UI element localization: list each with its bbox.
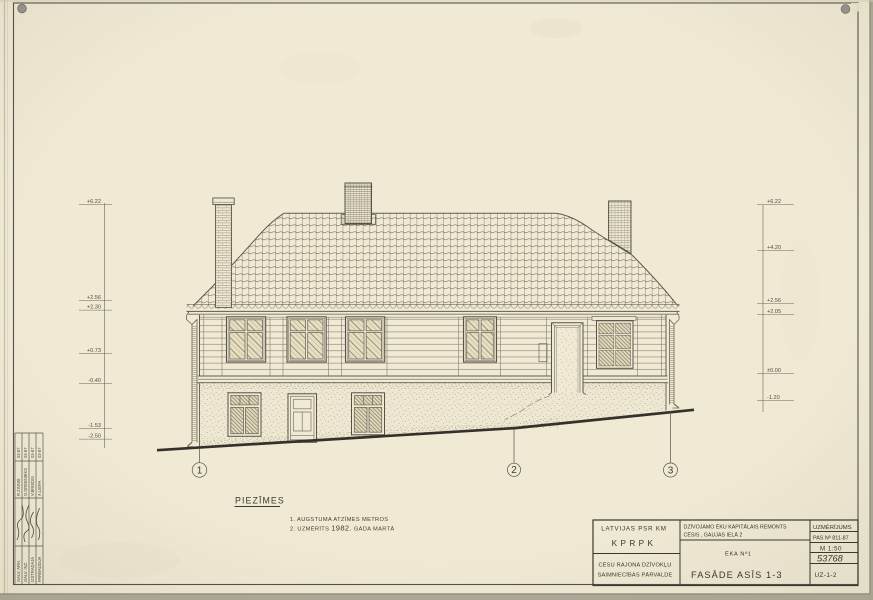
- svg-text:03-87: 03-87: [23, 447, 28, 458]
- svg-text:LATVIJAS PSR KM: LATVIJAS PSR KM: [601, 526, 667, 533]
- svg-text:-0.40: -0.40: [88, 378, 101, 384]
- svg-text:PIEZĪMES: PIEZĪMES: [235, 496, 285, 506]
- svg-text:1: 1: [197, 466, 203, 477]
- svg-text:CĒSU RAJONA DZĪVOKĻU: CĒSU RAJONA DZĪVOKĻU: [598, 562, 671, 569]
- svg-text:2: 2: [511, 465, 517, 476]
- svg-text:3: 3: [668, 466, 674, 477]
- svg-text:+2.30: +2.30: [87, 305, 101, 311]
- svg-text:±0.00: ±0.00: [767, 368, 781, 374]
- svg-text:KPRPK: KPRPK: [612, 539, 657, 548]
- svg-text:ĒKA Nº1: ĒKA Nº1: [725, 551, 752, 558]
- svg-text:+6.22: +6.22: [87, 199, 101, 205]
- svg-text:+4.20: +4.20: [767, 245, 781, 251]
- svg-text:O.DREBNIEKS: O.DREBNIEKS: [23, 468, 28, 496]
- svg-text:03-87: 03-87: [16, 447, 21, 458]
- svg-text:+6.22: +6.22: [767, 199, 781, 205]
- svg-text:PAS Nº 811-87: PAS Nº 811-87: [813, 536, 849, 542]
- svg-text:DZĪVOJAMO ĒKU KAPITĀLAIS REMON: DZĪVOJAMO ĒKU KAPITĀLAIS REMONTS: [684, 524, 787, 531]
- svg-text:-1.20: -1.20: [767, 395, 780, 401]
- svg-text:A.LIEPA: A.LIEPA: [37, 481, 42, 496]
- svg-text:UZ-1-2: UZ-1-2: [815, 572, 837, 579]
- svg-text:GALV. INZ.: GALV. INZ.: [23, 562, 28, 582]
- svg-text:R.ZINNIS: R.ZINNIS: [16, 478, 21, 496]
- svg-text:IZSTRADAJA: IZSTRADAJA: [30, 557, 35, 582]
- svg-text:+2.56: +2.56: [87, 295, 101, 301]
- svg-text:SAIMNIECĪBAS PĀRVALDE: SAIMNIECĪBAS PĀRVALDE: [598, 572, 673, 579]
- svg-text:GALV. ARH.: GALV. ARH.: [16, 560, 21, 582]
- svg-text:V.BRIEDIS: V.BRIEDIS: [30, 476, 35, 496]
- svg-text:53768: 53768: [817, 554, 844, 564]
- svg-text:+2.56: +2.56: [767, 298, 781, 304]
- svg-text:-1.53: -1.53: [88, 423, 101, 429]
- svg-text:M 1:50: M 1:50: [820, 546, 842, 553]
- svg-text:+2.05: +2.05: [767, 309, 781, 315]
- svg-text:CĒSIS , GAUJAS IELĀ 2: CĒSIS , GAUJAS IELĀ 2: [684, 532, 743, 539]
- svg-text:FASĀDE ASĪS 1-3: FASĀDE ASĪS 1-3: [691, 570, 783, 580]
- svg-text:1. AUGSTUMA ATZĪMES METROS: 1. AUGSTUMA ATZĪMES METROS: [290, 516, 388, 523]
- svg-text:+0.73: +0.73: [87, 348, 101, 354]
- svg-text:03-87: 03-87: [37, 447, 42, 458]
- svg-text:-2.50: -2.50: [88, 434, 101, 440]
- svg-text:UZMĒRĪJUMS: UZMĒRĪJUMS: [813, 524, 852, 531]
- svg-text:PARBAUDIJA: PARBAUDIJA: [37, 556, 42, 582]
- svg-text:03-87: 03-87: [30, 447, 35, 458]
